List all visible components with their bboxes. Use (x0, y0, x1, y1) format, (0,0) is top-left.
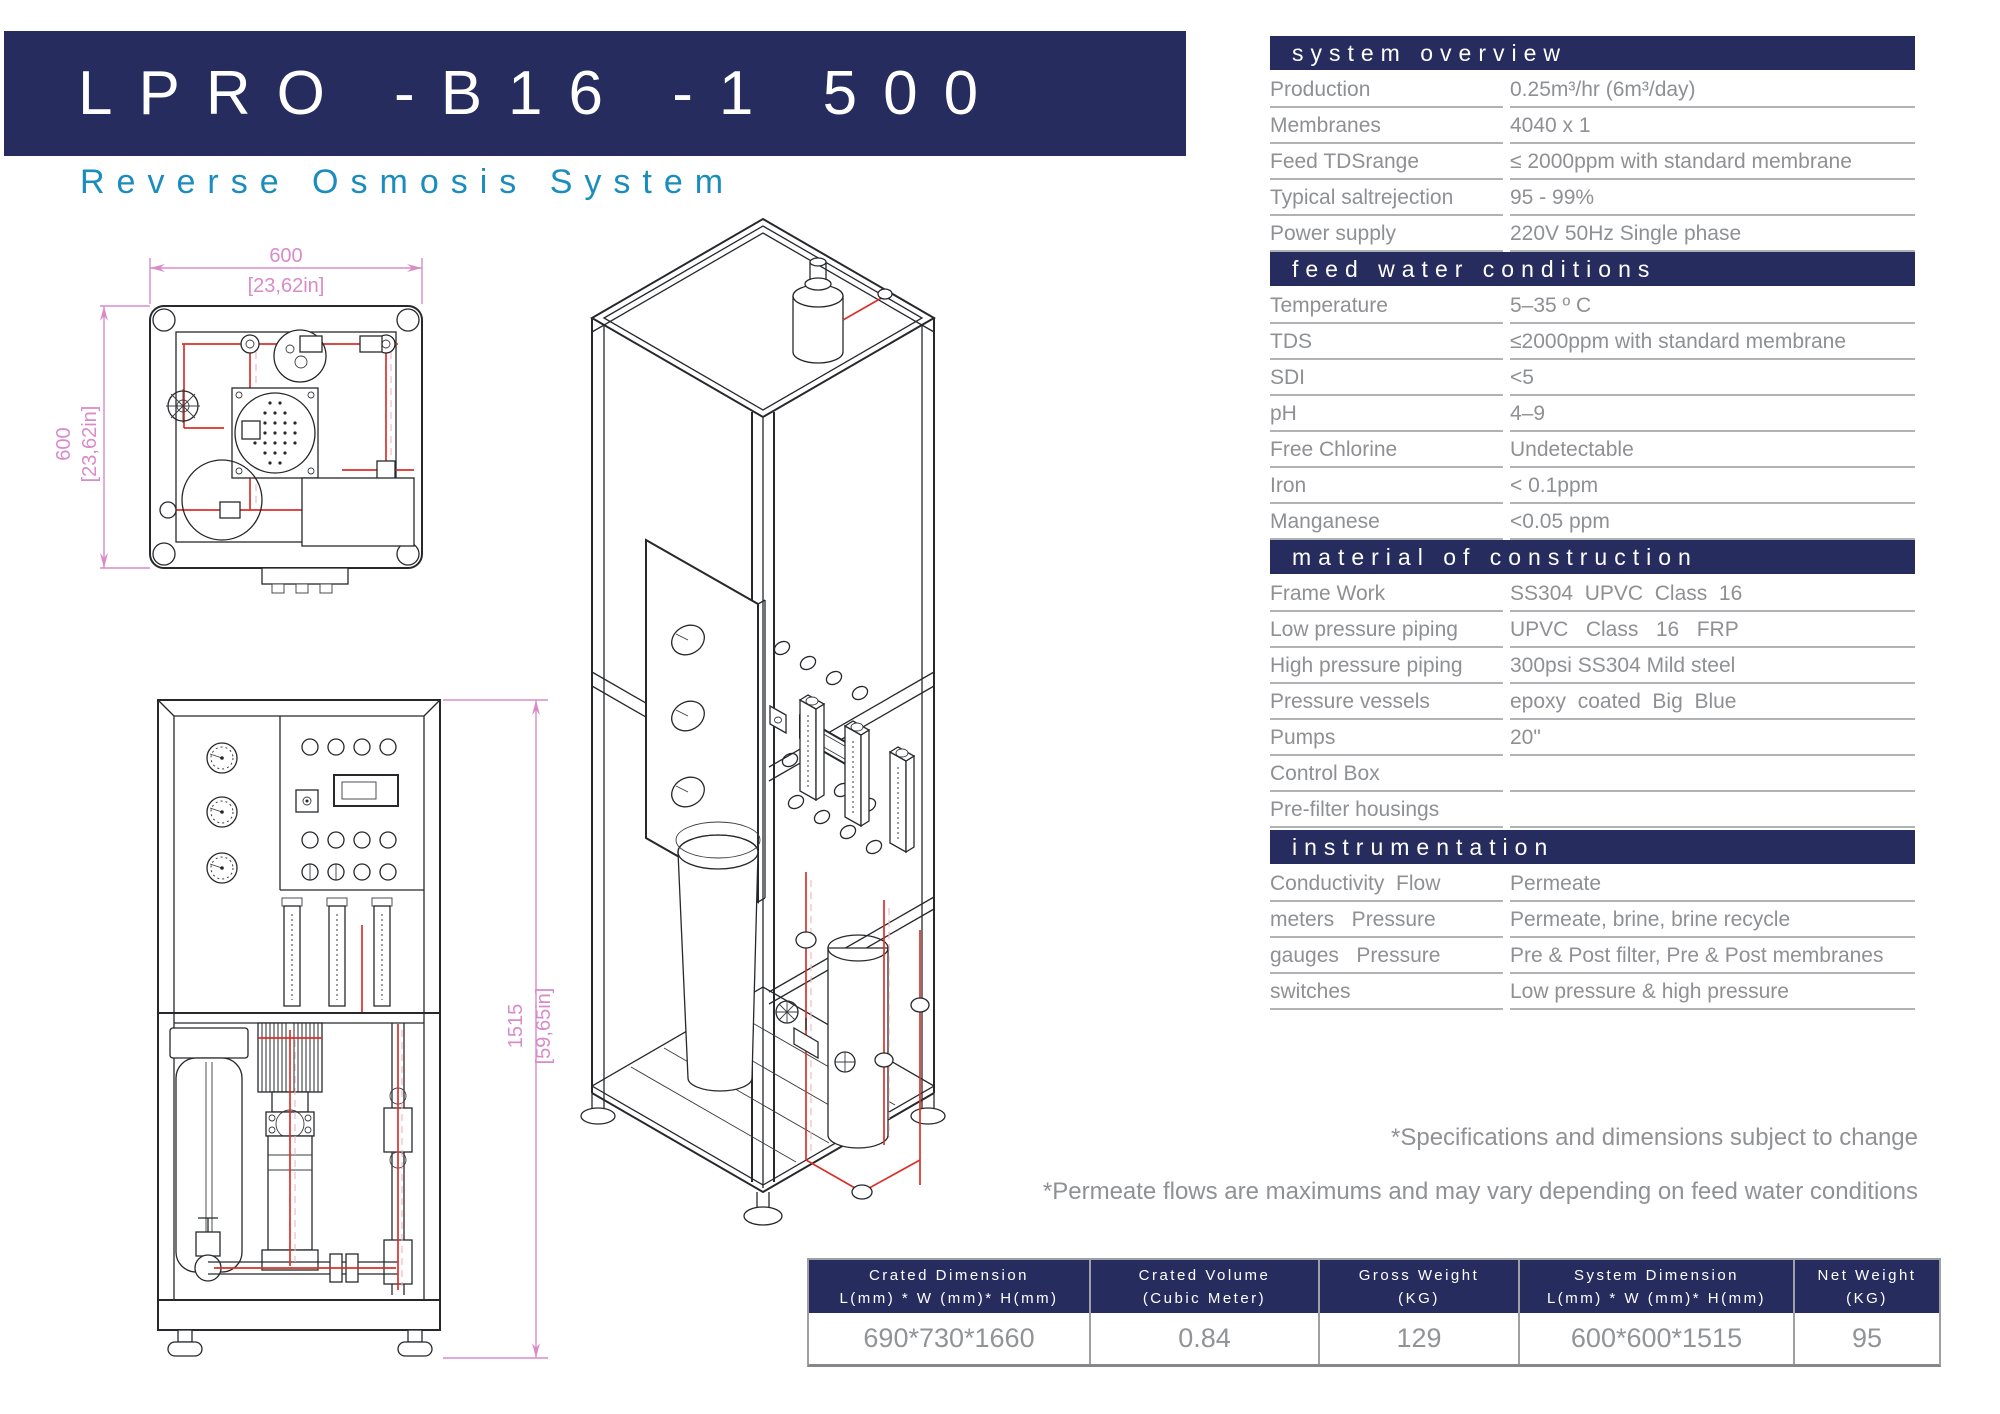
column-title: System Dimension (1520, 1267, 1793, 1284)
section-header: material of construction (1270, 540, 1915, 574)
column-subtitle: (Cubic Meter) (1091, 1290, 1318, 1307)
spec-value: 4–9 (1510, 402, 1915, 432)
spec-value: 20" (1510, 726, 1915, 756)
spec-label: Control Box (1270, 762, 1503, 792)
spec-row: Power supply220V 50Hz Single phase (1270, 216, 1915, 252)
column-title: Crated Dimension (809, 1267, 1089, 1284)
column-subtitle: (KG) (1795, 1290, 1939, 1307)
spec-label: Feed TDSrange (1270, 150, 1503, 180)
spec-label: Membranes (1270, 114, 1503, 144)
footnote-specifications: *Specifications and dimensions subject t… (1391, 1124, 1918, 1152)
spec-label: Pre-filter housings (1270, 798, 1503, 828)
spec-label: Conductivity Flow (1270, 872, 1503, 902)
spec-label: Temperature (1270, 294, 1503, 324)
title-banner: LPRO -B16 -1 500 (4, 31, 1186, 156)
footnote-permeate: *Permeate flows are maximums and may var… (1043, 1178, 1918, 1206)
shipping-column-crated-volume: Crated Volume (Cubic Meter) 0.84 (1091, 1260, 1320, 1364)
spec-row: gauges PressurePre & Post filter, Pre & … (1270, 938, 1915, 974)
spec-label: gauges Pressure (1270, 944, 1503, 974)
svg-text:600: 600 (53, 427, 75, 460)
spec-value: Undetectable (1510, 438, 1915, 468)
shipping-column-gross-weight: Gross Weight (KG) 129 (1320, 1260, 1520, 1364)
section-instrumentation: instrumentation Conductivity FlowPermeat… (1270, 830, 1915, 1010)
spec-row: Temperature5–35 º C (1270, 288, 1915, 324)
shipping-column-net-weight: Net Weight (KG) 95 (1795, 1260, 1939, 1364)
section-header: feed water conditions (1270, 252, 1915, 286)
top-vessel (793, 258, 892, 363)
front-view-height-dimension: 1515 [59,65in] (443, 700, 555, 1358)
spec-value: ≤2000ppm with standard membrane (1510, 330, 1915, 360)
flow-meters-front (282, 898, 392, 1012)
shipping-table: Crated Dimension L(mm) * W (mm)* H(mm) 6… (807, 1258, 1941, 1367)
shipping-column-system-dimension: System Dimension L(mm) * W (mm)* H(mm) 6… (1520, 1260, 1795, 1364)
spec-label: TDS (1270, 330, 1503, 360)
spec-row: Production0.25m³/hr (6m³/day) (1270, 72, 1915, 108)
spec-row: Free ChlorineUndetectable (1270, 432, 1915, 468)
spec-label: switches (1270, 980, 1503, 1010)
spec-value (1510, 786, 1915, 792)
spec-label: Frame Work (1270, 582, 1503, 612)
spec-value: 95 - 99% (1510, 186, 1915, 216)
spec-value: Pre & Post filter, Pre & Post membranes (1510, 944, 1915, 974)
datasheet-page: 600 [23,62in] 600 [23,62in] (0, 0, 2000, 1414)
column-subtitle: (KG) (1320, 1290, 1518, 1307)
top-view-width-dimension: 600 [23,62in] (150, 245, 422, 304)
iso-flow-meters (800, 695, 914, 852)
column-title: Crated Volume (1091, 1267, 1318, 1284)
spec-label: Pumps (1270, 726, 1503, 756)
column-value: 690*730*1660 (809, 1313, 1089, 1364)
spec-label: Power supply (1270, 222, 1503, 252)
spec-label: Pressure vessels (1270, 690, 1503, 720)
column-value: 600*600*1515 (1520, 1313, 1793, 1364)
spec-value: <5 (1510, 366, 1915, 396)
spec-label: Iron (1270, 474, 1503, 504)
spec-value: 0.25m³/hr (6m³/day) (1510, 78, 1915, 108)
spec-value: 300psi SS304 Mild steel (1510, 654, 1915, 684)
spec-value: Low pressure & high pressure (1510, 980, 1915, 1010)
svg-text:[23,62in]: [23,62in] (248, 275, 325, 297)
spec-row: SDI<5 (1270, 360, 1915, 396)
section-feed-water-conditions: feed water conditions Temperature5–35 º … (1270, 252, 1915, 540)
section-header: instrumentation (1270, 830, 1915, 864)
hand-valve (166, 389, 200, 423)
spec-row: Frame WorkSS304 UPVC Class 16 (1270, 576, 1915, 612)
top-view-depth-dimension: 600 [23,62in] (53, 306, 150, 568)
spec-row: Control Box (1270, 756, 1915, 792)
spec-row: meters PressurePermeate, brine, brine re… (1270, 902, 1915, 938)
spec-value: 220V 50Hz Single phase (1510, 222, 1915, 252)
spec-label: pH (1270, 402, 1503, 432)
svg-text:[59,65in]: [59,65in] (533, 988, 555, 1065)
svg-text:[23,62in]: [23,62in] (79, 406, 101, 483)
spec-label: SDI (1270, 366, 1503, 396)
spec-row: Pressure vesselsepoxy coated Big Blue (1270, 684, 1915, 720)
spec-row: Conductivity FlowPermeate (1270, 866, 1915, 902)
spec-row: Typical saltrejection95 - 99% (1270, 180, 1915, 216)
spec-value: 5–35 º C (1510, 294, 1915, 324)
spec-row: Membranes4040 x 1 (1270, 108, 1915, 144)
spec-row: Feed TDSrange≤ 2000ppm with standard mem… (1270, 144, 1915, 180)
spec-row: pH4–9 (1270, 396, 1915, 432)
spec-label: High pressure piping (1270, 654, 1503, 684)
spec-value: <0.05 ppm (1510, 510, 1915, 540)
spec-label: Production (1270, 78, 1503, 108)
top-view-drawing: 600 [23,62in] 600 [23,62in] (53, 245, 422, 593)
column-subtitle: L(mm) * W (mm)* H(mm) (1520, 1290, 1793, 1307)
spec-label: Manganese (1270, 510, 1503, 540)
section-material-of-construction: material of construction Frame WorkSS304… (1270, 540, 1915, 828)
column-value: 0.84 (1091, 1313, 1318, 1364)
spec-row: High pressure piping300psi SS304 Mild st… (1270, 648, 1915, 684)
column-subtitle: L(mm) * W (mm)* H(mm) (809, 1290, 1089, 1307)
spec-value (1510, 822, 1915, 828)
panel-indicators (296, 739, 398, 880)
spec-row: TDS≤2000ppm with standard membrane (1270, 324, 1915, 360)
spec-label: Free Chlorine (1270, 438, 1503, 468)
spec-label: Low pressure piping (1270, 618, 1503, 648)
spec-value: Permeate (1510, 872, 1915, 902)
spec-row: Pumps20" (1270, 720, 1915, 756)
svg-text:600: 600 (269, 245, 302, 267)
column-title: Net Weight (1795, 1267, 1939, 1284)
spec-row: Iron< 0.1ppm (1270, 468, 1915, 504)
front-view-drawing: 1515 [59,65in] (158, 700, 555, 1358)
column-value: 129 (1320, 1313, 1518, 1364)
spec-row: Pre-filter housings (1270, 792, 1915, 828)
column-value: 95 (1795, 1313, 1939, 1364)
spec-value: 4040 x 1 (1510, 114, 1915, 144)
spec-row: Low pressure pipingUPVC Class 16 FRP (1270, 612, 1915, 648)
column-title: Gross Weight (1320, 1267, 1518, 1284)
spec-value: Permeate, brine, brine recycle (1510, 908, 1915, 938)
spec-value: ≤ 2000ppm with standard membrane (1510, 150, 1915, 180)
spec-value: UPVC Class 16 FRP (1510, 618, 1915, 648)
spec-value: < 0.1ppm (1510, 474, 1915, 504)
spec-value: epoxy coated Big Blue (1510, 690, 1915, 720)
section-header: system overview (1270, 36, 1915, 70)
isometric-view-drawing (581, 219, 945, 1225)
pressure-gauges (207, 743, 237, 883)
spec-row: Manganese<0.05 ppm (1270, 504, 1915, 540)
spec-row: switchesLow pressure & high pressure (1270, 974, 1915, 1010)
spec-value: SS304 UPVC Class 16 (1510, 582, 1915, 612)
page-subtitle: Reverse Osmosis System (80, 163, 735, 202)
page-title: LPRO -B16 -1 500 (78, 31, 1004, 156)
spec-label: Typical saltrejection (1270, 186, 1503, 216)
section-system-overview: system overview Production0.25m³/hr (6m³… (1270, 36, 1915, 252)
shipping-column-crated-dimension: Crated Dimension L(mm) * W (mm)* H(mm) 6… (809, 1260, 1091, 1364)
svg-text:1515: 1515 (505, 1004, 527, 1049)
spec-label: meters Pressure (1270, 908, 1503, 938)
